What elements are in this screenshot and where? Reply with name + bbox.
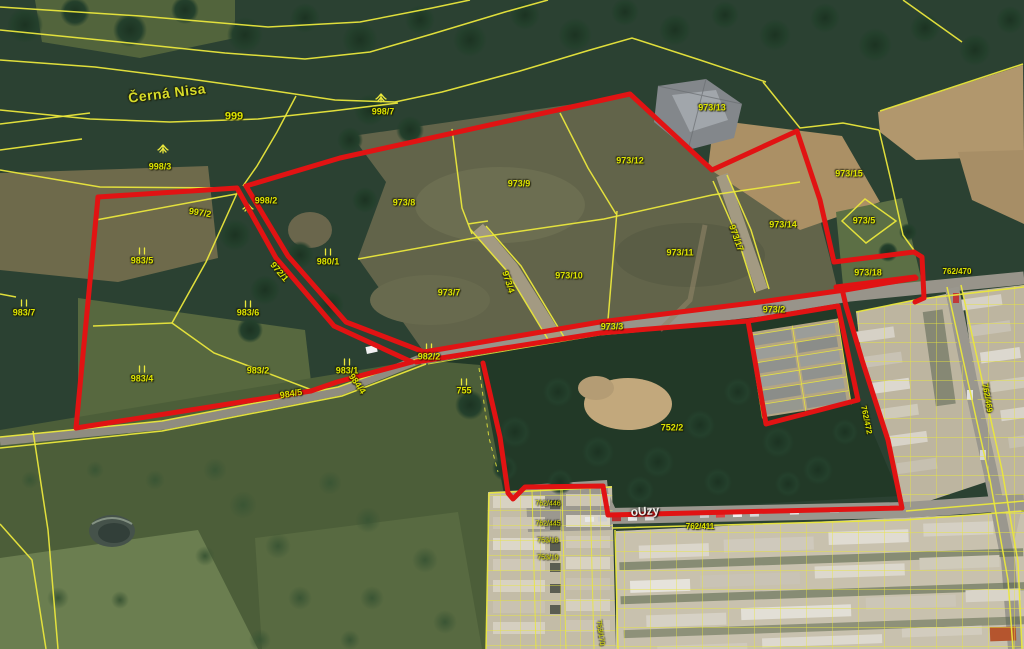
highlighted-parcel-outline xyxy=(843,293,846,306)
orthophoto-layer xyxy=(0,0,1024,649)
pond xyxy=(89,515,135,547)
cadastral-map: Černá Nisa999998/7998/3998/2997/2972/198… xyxy=(0,0,1024,649)
